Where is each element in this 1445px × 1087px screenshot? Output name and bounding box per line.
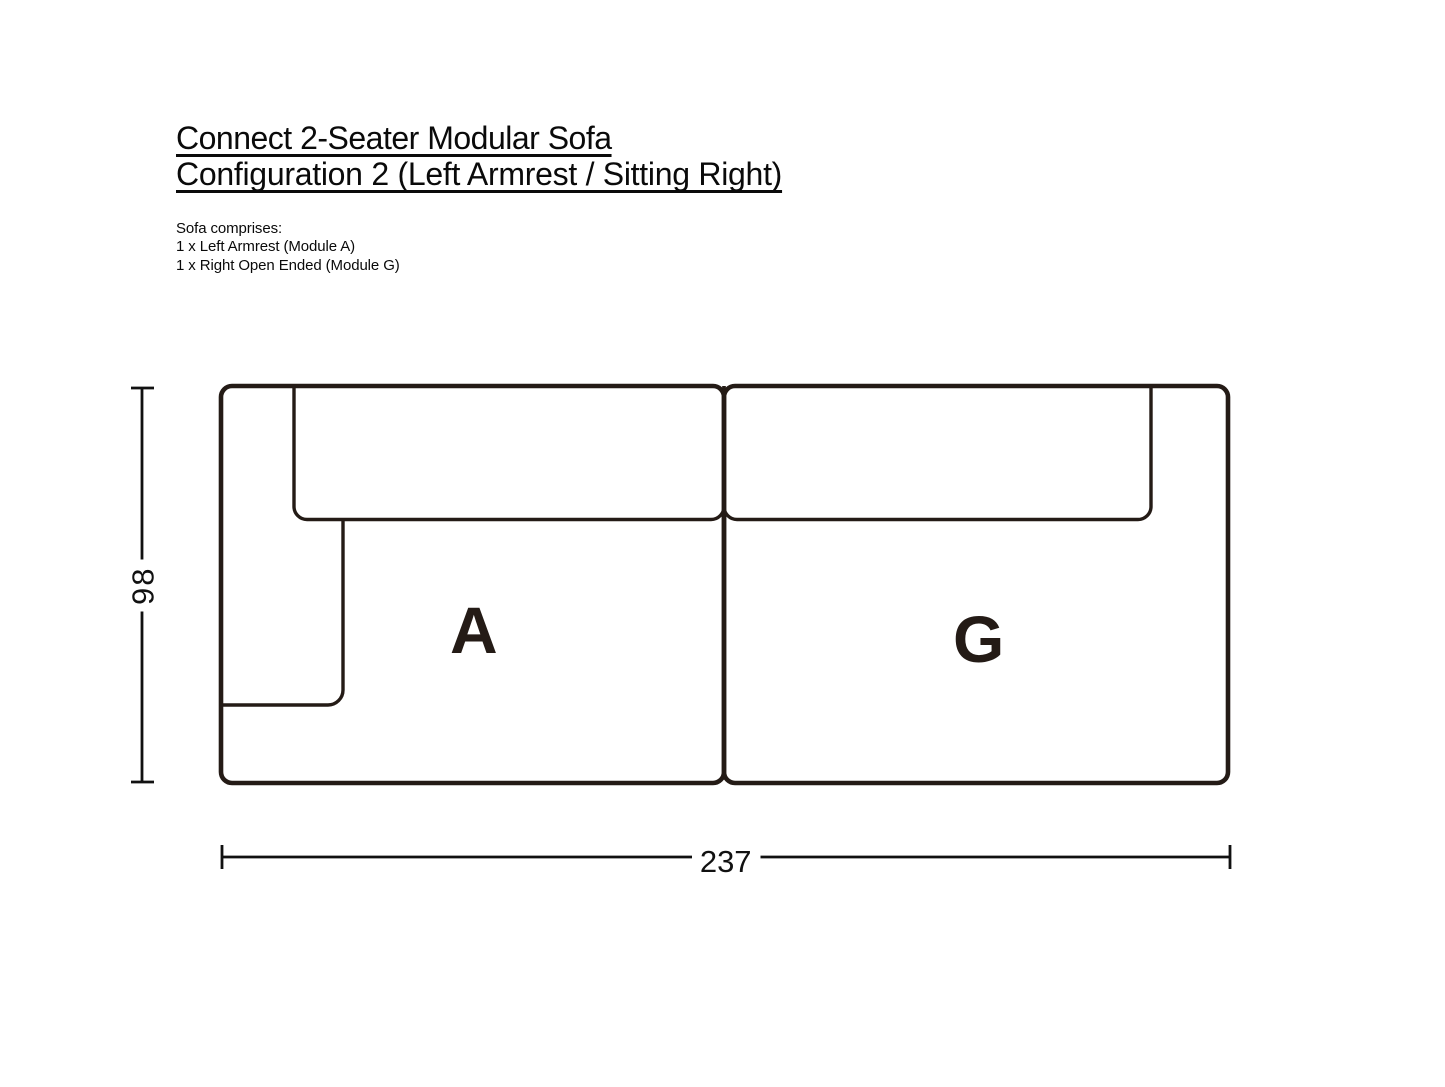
svg-text:98: 98 bbox=[126, 567, 161, 605]
svg-text:237: 237 bbox=[700, 844, 752, 879]
